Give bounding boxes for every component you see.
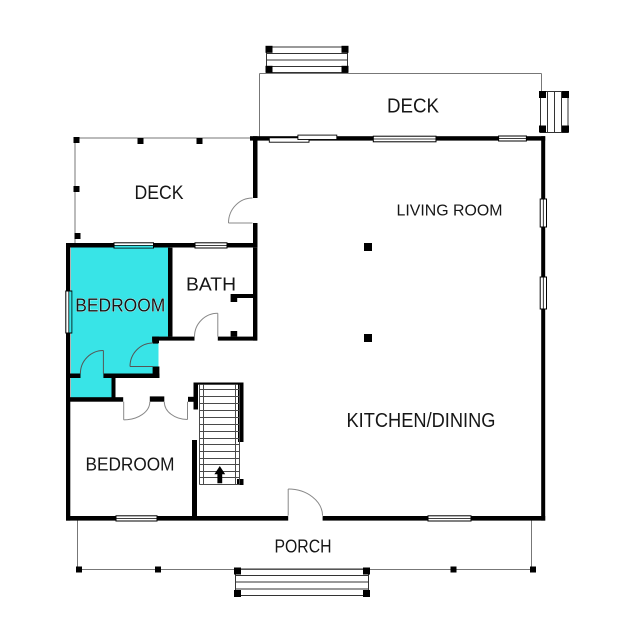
svg-text:DECK: DECK <box>387 96 440 118</box>
svg-text:BATH: BATH <box>186 275 236 295</box>
svg-text:DECK: DECK <box>135 183 184 204</box>
svg-text:LIVING ROOM: LIVING ROOM <box>397 203 503 220</box>
svg-text:BEDROOM: BEDROOM <box>75 296 165 316</box>
svg-text:KITCHEN/DINING: KITCHEN/DINING <box>347 409 496 432</box>
svg-text:PORCH: PORCH <box>275 537 332 557</box>
svg-text:BEDROOM: BEDROOM <box>86 455 175 475</box>
